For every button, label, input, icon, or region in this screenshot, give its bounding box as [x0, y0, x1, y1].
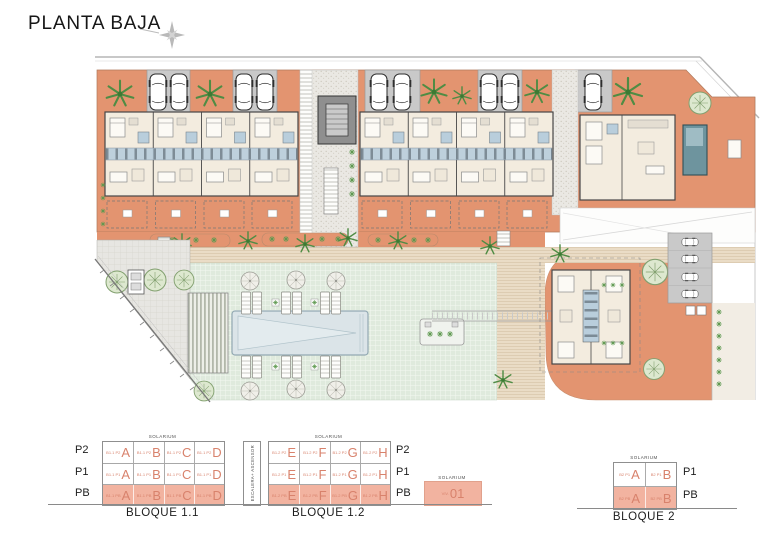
unit-cell: B1.2 P1H	[360, 464, 390, 484]
floor-label-p2: P2	[396, 444, 409, 456]
unit-cell: B2 P1B	[645, 463, 676, 486]
solarium-label: SOLARIUM	[102, 434, 223, 439]
promenade-deck	[140, 247, 755, 263]
unit-cell: B1.1 PBA	[103, 485, 133, 505]
block-name: BLOQUE 2	[583, 511, 705, 523]
unit-cell: B1.2 P2G	[330, 442, 360, 463]
parking-bay	[575, 70, 612, 112]
jacuzzi-feature	[420, 319, 464, 345]
block-name: BLOQUE 1.2	[268, 507, 389, 519]
car-icon	[149, 74, 168, 110]
car-icon	[370, 74, 389, 110]
bloque-2-table: B2 P1A B2 P1B B2 PBA B2 PBB	[613, 462, 677, 510]
block-name: BLOQUE 1.1	[102, 507, 223, 519]
table-row-ground: B2 PBA B2 PBB	[614, 486, 676, 509]
parking-bay	[147, 70, 190, 112]
parking-bay	[365, 70, 420, 112]
round-tree-icon	[689, 92, 711, 114]
stair-icon	[497, 231, 510, 246]
car-icon	[235, 74, 254, 110]
paved-terrace	[97, 240, 190, 379]
page-title: PLANTA BAJA	[28, 13, 161, 35]
page: { "header": { "title": "PLANTA BAJA", "c…	[0, 0, 770, 535]
car-icon	[584, 74, 603, 110]
car-icon	[501, 74, 520, 110]
unit-cell: B1.2 P2F	[299, 442, 329, 463]
parking-bay	[233, 70, 277, 112]
ground-line	[577, 508, 737, 509]
floor-label-pb: PB	[396, 487, 411, 499]
bloque-1-2-table: B1.2 P2E B1.2 P2F B1.2 P2G B1.2 P2H B1.2…	[268, 441, 391, 506]
unit-cell: B1.2 P1G	[330, 464, 360, 484]
car-icon	[682, 238, 698, 246]
side-strip	[712, 303, 755, 400]
floor-label-p1: P1	[75, 466, 88, 478]
unit-cell: B1.2 P2E	[269, 442, 299, 463]
unit-cell: B1.1 PBB	[133, 485, 163, 505]
table-row-ground: B1.1 PBA B1.1 PBB B1.1 PBC B1.1 PBD	[103, 484, 224, 505]
unit-cell: B1.1 P1C	[164, 464, 194, 484]
round-tree-icon	[144, 269, 166, 291]
unit-cell: B1.2 P1E	[269, 464, 299, 484]
unit-cell: B1.2 PBG	[330, 485, 360, 505]
unit-cell: B1.1 PBD	[194, 485, 224, 505]
unit-cell: B1.1 PBC	[164, 485, 194, 505]
unit-cell: B2 P1A	[614, 463, 645, 486]
car-icon	[393, 74, 412, 110]
unit-cell: B1.1 P1A	[103, 464, 133, 484]
car-icon	[682, 290, 698, 298]
unit-cell: B1.2 PBF	[299, 485, 329, 505]
unit-cell: B1.1 P2A	[103, 442, 133, 463]
viv01-box: VIV.01	[424, 481, 482, 506]
bloque-1-1-table: B1.1 P2A B1.1 P2B B1.1 P2C B1.1 P2D B1.1…	[102, 441, 225, 506]
unit-cell: B1.2 P1F	[299, 464, 329, 484]
floor-label-pb: PB	[683, 489, 698, 501]
floor-label-p2: P2	[75, 444, 88, 456]
unit-cell: B1.2 PBH	[360, 485, 390, 505]
ground-line	[48, 504, 492, 505]
unit-cell: B2 PBA	[614, 487, 645, 509]
pergola	[188, 293, 228, 373]
access-ramp-band	[560, 208, 755, 243]
unit-cell: B1.1 P2C	[164, 442, 194, 463]
unit-cell: B1.1 P1B	[133, 464, 163, 484]
unit-cell: B1.1 P2B	[133, 442, 163, 463]
floor-label-pb: PB	[75, 487, 90, 499]
escalera-ascensor-box: ESCALERA+ ASCENSOR	[243, 441, 261, 506]
solarium-label: SOLARIUM	[268, 434, 389, 439]
table-row: B2 P1A B2 P1B	[614, 463, 676, 486]
floor-label-p1: P1	[396, 466, 409, 478]
car-icon	[682, 255, 698, 263]
car-icon	[170, 74, 189, 110]
table-row: B1.1 P2A B1.1 P2B B1.1 P2C B1.1 P2D	[103, 442, 224, 463]
parking-bay	[478, 70, 522, 112]
unit-cell: B1.2 P2H	[360, 442, 390, 463]
round-tree-icon	[106, 271, 128, 293]
unit-cell: B1.1 P1D	[194, 464, 224, 484]
table-row-ground: B1.2 PBE B1.2 PBF B1.2 PBG B1.2 PBH	[269, 484, 390, 505]
floor-label-p1: P1	[683, 466, 696, 478]
car-icon	[480, 74, 499, 110]
solarium-label: SOLARIUM	[613, 455, 675, 460]
car-icon	[256, 74, 275, 110]
unit-cell: B2 PBB	[645, 487, 676, 509]
table-row: B1.2 P1E B1.2 P1F B1.2 P1G B1.2 P1H	[269, 463, 390, 484]
solarium-label: SOLARIUM	[424, 475, 480, 480]
unit-cell: B1.2 PBE	[269, 485, 299, 505]
unit-cell: B1.1 P2D	[194, 442, 224, 463]
table-row: B1.2 P2E B1.2 P2F B1.2 P2G B1.2 P2H	[269, 442, 390, 463]
community-area	[97, 240, 552, 401]
stair-icon	[324, 168, 338, 214]
car-icon	[682, 273, 698, 281]
terrace-table	[728, 140, 741, 158]
table-row: B1.1 P1A B1.1 P1B B1.1 P1C B1.1 P1D	[103, 463, 224, 484]
